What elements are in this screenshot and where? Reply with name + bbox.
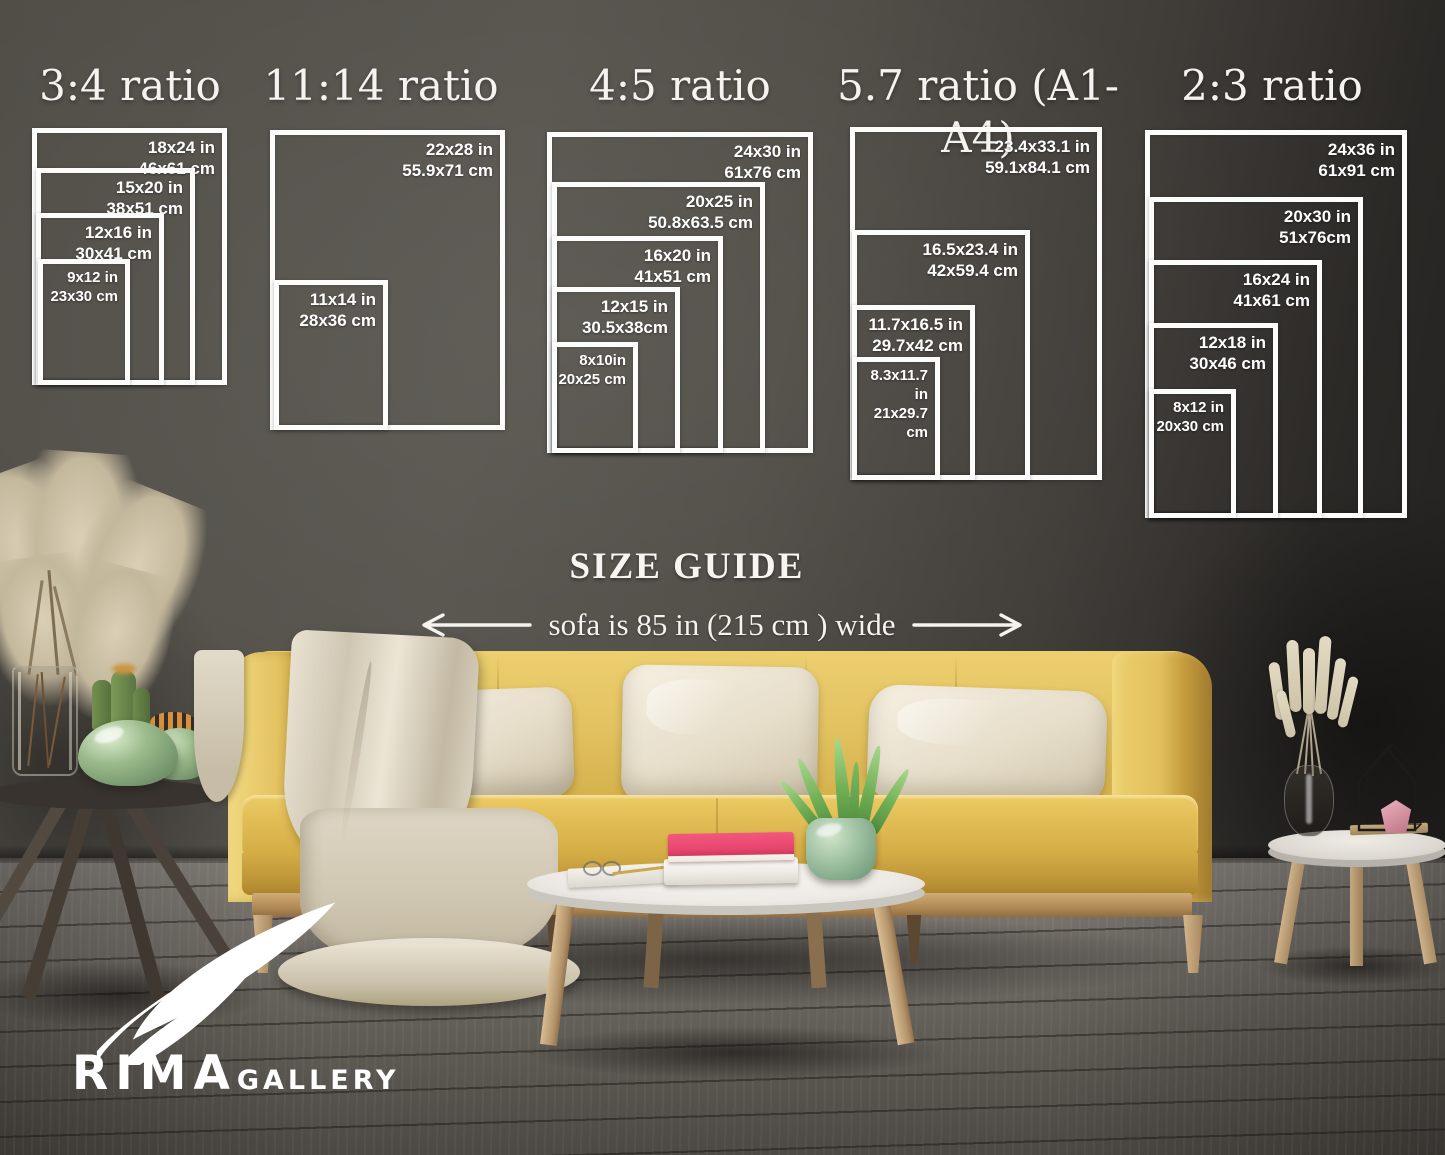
frame-size-label: 8x10in 20x25 cm — [558, 351, 626, 389]
brand-wordmark: RIMA GALLERY — [72, 1048, 412, 1100]
green-vase-cactus — [78, 720, 178, 786]
stool-leg — [1350, 854, 1363, 966]
brand-name: RIMA — [72, 1048, 237, 1100]
frame-size-label: 24x30 in 61x76 cm — [724, 141, 801, 183]
frame-size-label: 16x20 in 41x51 cm — [634, 245, 711, 287]
dried-flower-head — [1303, 648, 1315, 714]
size-guide-poster: 3:4 ratio 18x24 in 46x61 cm 15x20 in 38x… — [0, 0, 1445, 1155]
frame-8x10: 8x10in 20x25 cm — [552, 342, 638, 453]
twig — [27, 674, 39, 766]
frame-size-label: 16.5x23.4 in 42x59.4 cm — [923, 239, 1018, 281]
vase-frame-post — [18, 672, 21, 770]
frame-size-label: 20x25 in 50.8x63.5 cm — [648, 191, 753, 233]
vase-highlight — [815, 821, 843, 839]
vase-frame-post — [69, 672, 72, 770]
frame-8x11: 8.3x11.7 in 21x29.7 cm — [852, 357, 940, 480]
frame-size-label: 12x16 in 30x41 cm — [75, 222, 152, 264]
frame-size-label: 8x12 in 20x30 cm — [1156, 398, 1224, 436]
eyeglasses-lens — [583, 861, 602, 876]
frame-9x12: 9x12 in 23x30 cm — [38, 259, 130, 385]
sofa-width-note: sofa is 85 in (215 cm ) wide — [396, 602, 1048, 648]
cactus-spines — [112, 664, 136, 674]
frame-8x12: 8x12 in 20x30 cm — [1149, 389, 1236, 518]
frame-11x14: 11x14 in 28x36 cm — [274, 280, 388, 430]
ratio-title: 11:14 ratio — [261, 60, 501, 112]
brand-swoosh-icon — [92, 900, 337, 1065]
vase-highlight — [1306, 774, 1312, 824]
twig — [48, 677, 66, 766]
vase-highlight — [93, 724, 126, 747]
frame-size-label: 12x15 in 30.5x38cm — [582, 296, 668, 338]
twig — [41, 672, 50, 768]
plant-vase — [806, 818, 876, 880]
coffee-table-shadow — [515, 1025, 955, 1080]
frame-size-label: 24x36 in 61x91 cm — [1318, 139, 1395, 181]
ratio-title: 2:3 ratio — [1152, 60, 1392, 112]
glass-vase — [12, 666, 78, 776]
sofa-pillow-right — [866, 684, 1108, 808]
frame-size-label: 12x18 in 30x46 cm — [1189, 332, 1266, 374]
brand-suffix: GALLERY — [237, 1064, 400, 1098]
frame-size-label: 9x12 in 23x30 cm — [50, 268, 118, 306]
sofa-width-text: sofa is 85 in (215 cm ) wide — [549, 605, 896, 645]
frame-size-label: 23.4x33.1 in 59.1x84.1 cm — [985, 136, 1090, 178]
frame-size-label: 22x28 in 55.9x71 cm — [402, 139, 493, 181]
frame-size-label: 11x14 in 28x36 cm — [299, 289, 376, 331]
ratio-title: 3:4 ratio — [10, 60, 250, 112]
sofa-pillow-center — [621, 664, 819, 805]
frame-size-label: 8.3x11.7 in 21x29.7 cm — [857, 366, 928, 442]
size-guide-heading: SIZE GUIDE — [487, 547, 887, 587]
frame-size-label: 11.7x16.5 in 29.7x42 cm — [868, 314, 963, 356]
ratio-title: 4:5 ratio — [560, 60, 800, 112]
frame-size-label: 20x30 in 51x76cm — [1279, 206, 1351, 248]
pink-book — [668, 832, 794, 862]
frame-size-label: 16x24 in 41x61 cm — [1233, 269, 1310, 311]
arrow-right-icon — [911, 610, 1031, 640]
glass-vase-small — [1284, 765, 1334, 837]
